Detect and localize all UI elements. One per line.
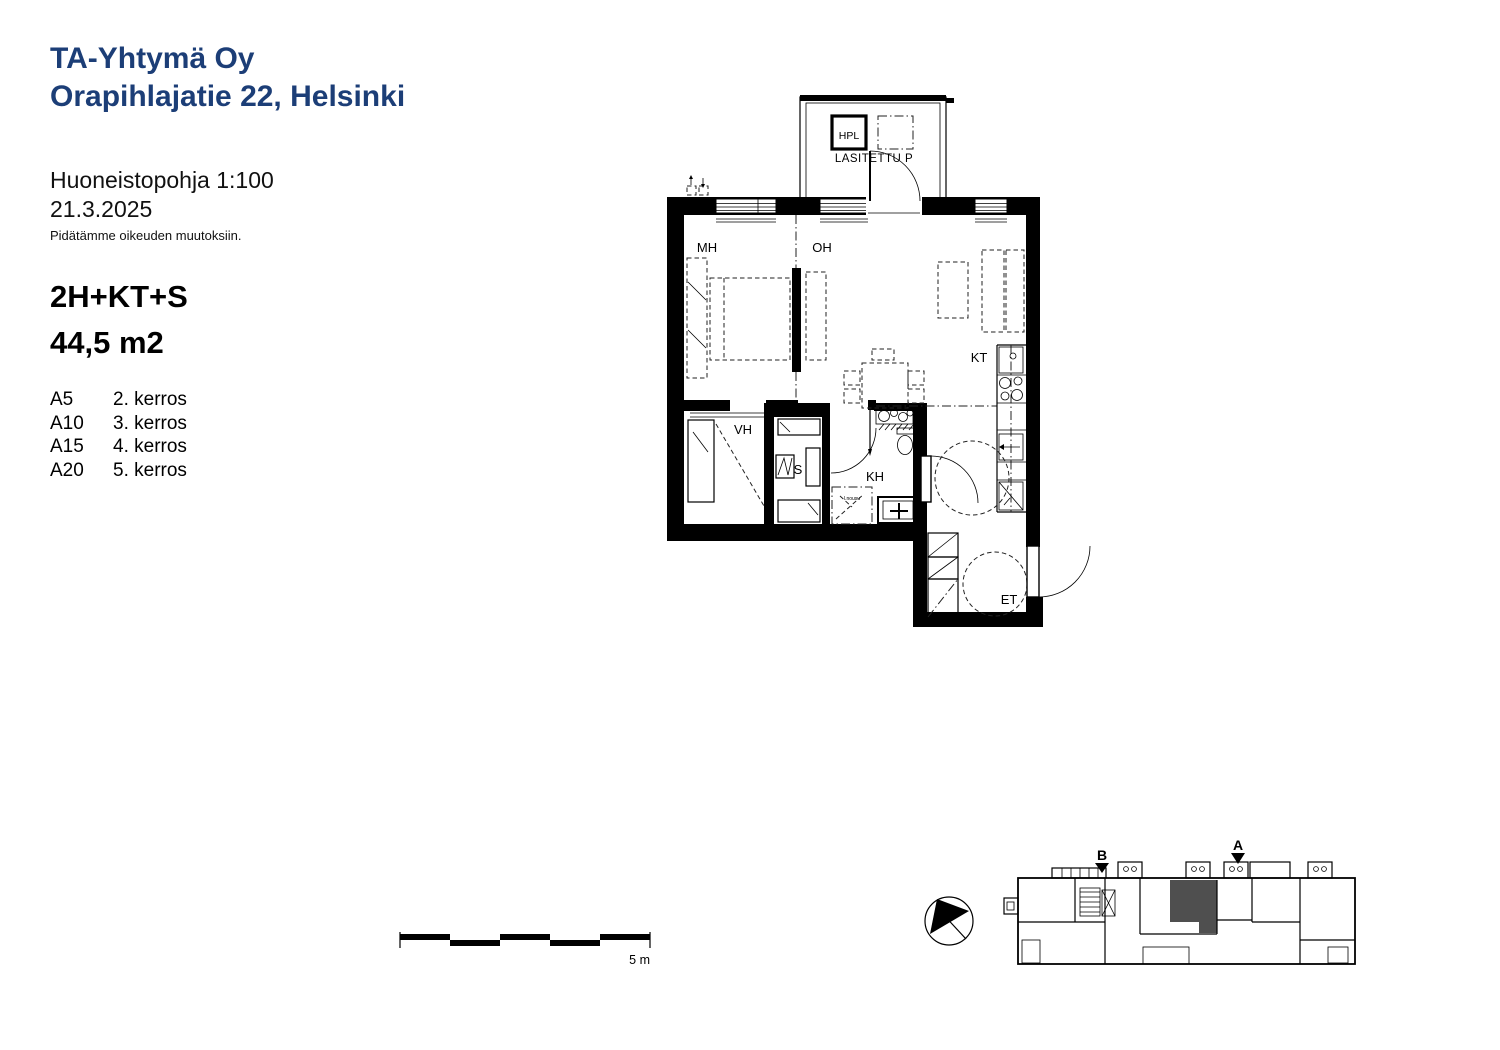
room-label-kt: KT (971, 350, 988, 365)
scale-bar: 5 m (400, 932, 650, 967)
sauna-bench-bottom (778, 500, 820, 522)
chair (872, 349, 894, 360)
window-kt (975, 199, 1007, 222)
north-arrow (925, 897, 973, 945)
entry-closets (928, 533, 958, 617)
hall-door (921, 456, 978, 503)
balcony-drain-nub (946, 98, 954, 103)
entry-door (1027, 546, 1090, 597)
floor-plan-sheet: TA-Yhtymä Oy Orapihlajatie 22, Helsinki … (0, 0, 1500, 1050)
mh-wardrobe (687, 258, 707, 378)
mh-oh-wall-stub (792, 268, 801, 372)
room-label-et: ET (1001, 592, 1018, 607)
room-label-oh: OH (812, 240, 832, 255)
hall-and-entry (921, 441, 1090, 617)
apartment-plan: HPL LASITETTU P (667, 95, 1090, 627)
room-label-mh: MH (697, 240, 717, 255)
bathroom-fixtures: l.nousu (831, 409, 918, 524)
chair (844, 389, 860, 403)
hpl-label: HPL (839, 130, 860, 142)
vh-closet (688, 413, 764, 506)
mh-furniture (687, 258, 826, 378)
marker-b-label: B (1097, 847, 1107, 863)
highlighted-apartment (1170, 880, 1217, 933)
interior-walls (684, 215, 926, 524)
door-leaf (1027, 546, 1039, 597)
sauna-bench-back (806, 448, 820, 486)
toilet (897, 428, 914, 455)
marker-a: A (1231, 837, 1245, 864)
key-plan: A B (1004, 837, 1355, 964)
chair (844, 371, 860, 385)
scale-label: 5 m (629, 953, 650, 967)
drawing-canvas: HPL LASITETTU P (0, 0, 1500, 1050)
room-label-s: S (794, 462, 803, 477)
vh-wardrobe (688, 420, 714, 502)
marker-a-label: A (1233, 837, 1243, 853)
sauna-stove (776, 455, 794, 478)
riser-note: l.nousu (844, 496, 860, 502)
balcony-label: LASITETTU P (835, 153, 913, 165)
sauna-bench-top (778, 419, 820, 435)
sofa-seat (982, 250, 1004, 332)
kh-door (831, 409, 876, 473)
mh-bed (710, 278, 790, 360)
balcony: HPL LASITETTU P (800, 95, 954, 201)
washing-machine (878, 497, 918, 523)
sofa-back (1006, 250, 1024, 332)
kitchen-fixtures (997, 345, 1026, 512)
marker-b: B (1095, 847, 1109, 873)
chair (908, 371, 924, 385)
oh-tv-bench (806, 272, 826, 360)
coffee-table (938, 262, 968, 318)
outer-walls (667, 197, 1043, 627)
window-oh (820, 199, 868, 222)
turning-circle-hall (935, 441, 1009, 515)
room-labels: MH OH KT VH S KH ET (697, 240, 1017, 607)
shower-area: l.nousu (832, 487, 872, 524)
door-swing-arc (1039, 546, 1090, 597)
north-wedge (930, 899, 969, 934)
balcony-reservation-box (878, 116, 913, 149)
stair-entrances (1118, 862, 1332, 878)
vent-symbols (687, 175, 708, 195)
chair (908, 389, 924, 403)
room-label-kh: KH (866, 469, 884, 484)
window-mh (716, 199, 776, 222)
room-label-vh: VH (734, 422, 752, 437)
turning-circle-et (963, 552, 1027, 616)
